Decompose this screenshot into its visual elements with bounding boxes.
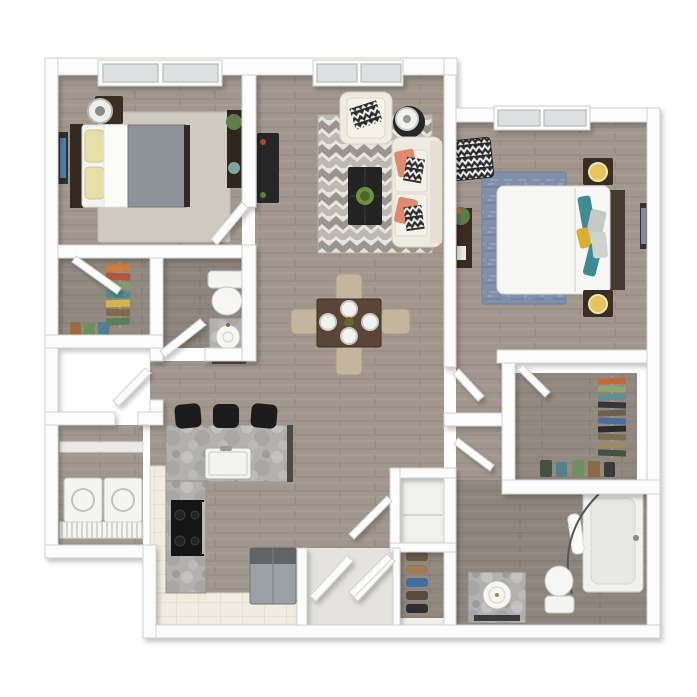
closet2-garment-4 <box>598 402 626 409</box>
window-bedroom2-pane-1 <box>498 110 540 126</box>
wall-exterior-right <box>647 108 660 638</box>
bed1-headboard <box>70 124 83 208</box>
bar-stool-2 <box>213 404 239 428</box>
wall-shoe-closet-west <box>393 548 400 625</box>
wall-closet2-west <box>502 363 515 480</box>
bed1-wall-art-canvas <box>60 138 66 178</box>
floor-plan-stage <box>0 0 697 697</box>
bed2-lamp-north <box>589 163 607 181</box>
wall-laundry-north-east <box>138 412 163 425</box>
tv-console <box>257 133 279 203</box>
bed2-dresser-decor <box>457 246 466 260</box>
closet1-shoe-1 <box>70 322 81 336</box>
kitchen-sink <box>205 448 251 479</box>
stove-burner-3 <box>175 536 185 546</box>
bed1-decor <box>228 162 240 174</box>
window-bedroom1-pane-2 <box>163 64 218 82</box>
closet1-garment-1 <box>106 263 130 271</box>
closet2-garment-10 <box>598 450 626 457</box>
bed1-footboard <box>184 125 190 207</box>
closet1-garment-7 <box>106 317 130 325</box>
bathroom2-toilet-tank <box>545 596 574 613</box>
closet1-garment-5 <box>106 300 130 308</box>
closet1-shoe-3 <box>98 322 109 336</box>
window-living-pane-2 <box>361 64 401 82</box>
bathroom2-candle <box>495 593 499 597</box>
stove-burner-4 <box>191 537 199 545</box>
bathroom2-toilet-bowl <box>545 566 573 596</box>
bathroom1-toilet-bowl <box>212 287 242 315</box>
wall-closet2-south <box>502 480 660 494</box>
bed2-headboard <box>608 190 625 290</box>
stove <box>171 500 204 556</box>
bar-stool-1 <box>174 403 202 429</box>
stove-burner-2 <box>191 511 199 519</box>
dining-chair-north <box>336 274 362 302</box>
bed2-wall-art-canvas <box>641 208 646 244</box>
dining-centerpiece-flowers <box>347 318 351 322</box>
closet1-shoe-2 <box>84 323 95 336</box>
wall-exterior-notch-v <box>143 545 156 638</box>
entry-closet-shoes-5 <box>406 604 428 613</box>
wall-linen-closet-west <box>390 468 400 550</box>
window-bedroom1-pane-1 <box>103 64 158 82</box>
dining-chair-south <box>336 345 362 375</box>
laundry-shelf <box>60 442 143 452</box>
wall-kitchen-entry-stub <box>297 548 307 625</box>
wall-living-east <box>444 75 456 367</box>
bed1-pillow-2 <box>85 167 104 199</box>
sofa-back <box>430 141 442 243</box>
closet2-garment-2 <box>598 386 626 393</box>
floor-plan-canvas <box>0 0 697 697</box>
stove-burner-1 <box>175 510 185 520</box>
bathroom1-faucet <box>226 323 230 327</box>
bed1-duvet <box>128 125 186 207</box>
closet2-garment-3 <box>598 394 626 401</box>
kitchen-faucet <box>220 446 232 451</box>
tv-console-decor-red <box>260 139 266 145</box>
coffee-table-bowl-inner <box>360 191 370 201</box>
kitchen-bar-end-panel <box>287 425 293 482</box>
closet2-garment-9 <box>598 442 626 449</box>
floor-hallway-left <box>150 361 255 425</box>
bed1-lamp-shade <box>95 106 105 116</box>
dining-chair-west <box>291 309 320 334</box>
closet2-boot-1 <box>540 460 552 477</box>
bed2-accent-chair <box>450 137 494 181</box>
entry-closet-shoes-3 <box>406 578 428 587</box>
window-living-pane-1 <box>317 64 357 82</box>
wall-laundry-north-west <box>45 412 115 425</box>
wall-exterior-bottom <box>143 625 660 638</box>
bed1-pillow-1 <box>85 130 104 162</box>
dining-chair-east <box>381 309 410 334</box>
entry-closet-shoes-2 <box>406 565 428 574</box>
closet2-garment-8 <box>598 434 626 441</box>
closet2-garment-7 <box>598 426 626 433</box>
tv-console-decor-green <box>260 192 266 198</box>
wall-bathroom1-east <box>242 245 256 361</box>
closet2-boot-5 <box>604 462 615 477</box>
wall-exterior-left <box>45 58 58 558</box>
bed2-lamp-south <box>589 295 607 313</box>
wall-bedroom1-south <box>58 245 256 258</box>
wall-exterior-notch-h <box>45 545 156 558</box>
closet2-garment-5 <box>598 410 626 417</box>
dining-plate-west <box>320 314 336 330</box>
washer <box>64 478 102 522</box>
wall-bedroom2-south <box>497 350 647 363</box>
side-table-lamp-top <box>403 115 411 123</box>
wall-closet1-south <box>45 335 163 348</box>
bed2-pillow-gray-2 <box>591 231 609 258</box>
closet2-boot-2 <box>556 462 567 477</box>
bathroom1-sink <box>216 325 240 349</box>
bar-stool-3 <box>250 403 278 429</box>
bathtub-faucet <box>633 535 639 541</box>
entry-closet-shoes-1 <box>406 552 428 561</box>
stove-handle <box>202 502 205 554</box>
closet2-boot-3 <box>572 460 584 477</box>
dining-plate-east <box>362 314 378 330</box>
dryer <box>104 478 142 522</box>
bed1-plant <box>226 114 242 130</box>
closet2-garment-6 <box>598 418 626 425</box>
wall-bedroom1-living <box>242 75 256 207</box>
bathtub-basin <box>591 498 635 584</box>
bathroom2-mat <box>474 615 520 621</box>
closet2-boot-4 <box>588 461 600 477</box>
bed1-sheet <box>104 125 130 207</box>
dining-plate-south <box>341 328 357 344</box>
closet1-garment-6 <box>106 309 130 317</box>
laundry-wire-shelf <box>60 522 143 538</box>
sofa-chevron-pillow-2 <box>403 205 424 231</box>
dining-plate-north <box>341 301 357 317</box>
closet2-garment-1 <box>598 378 626 385</box>
entry-closet-shoes-4 <box>406 591 428 600</box>
window-bedroom2-pane-2 <box>544 110 586 126</box>
bathroom1-toilet-tank <box>208 271 246 288</box>
